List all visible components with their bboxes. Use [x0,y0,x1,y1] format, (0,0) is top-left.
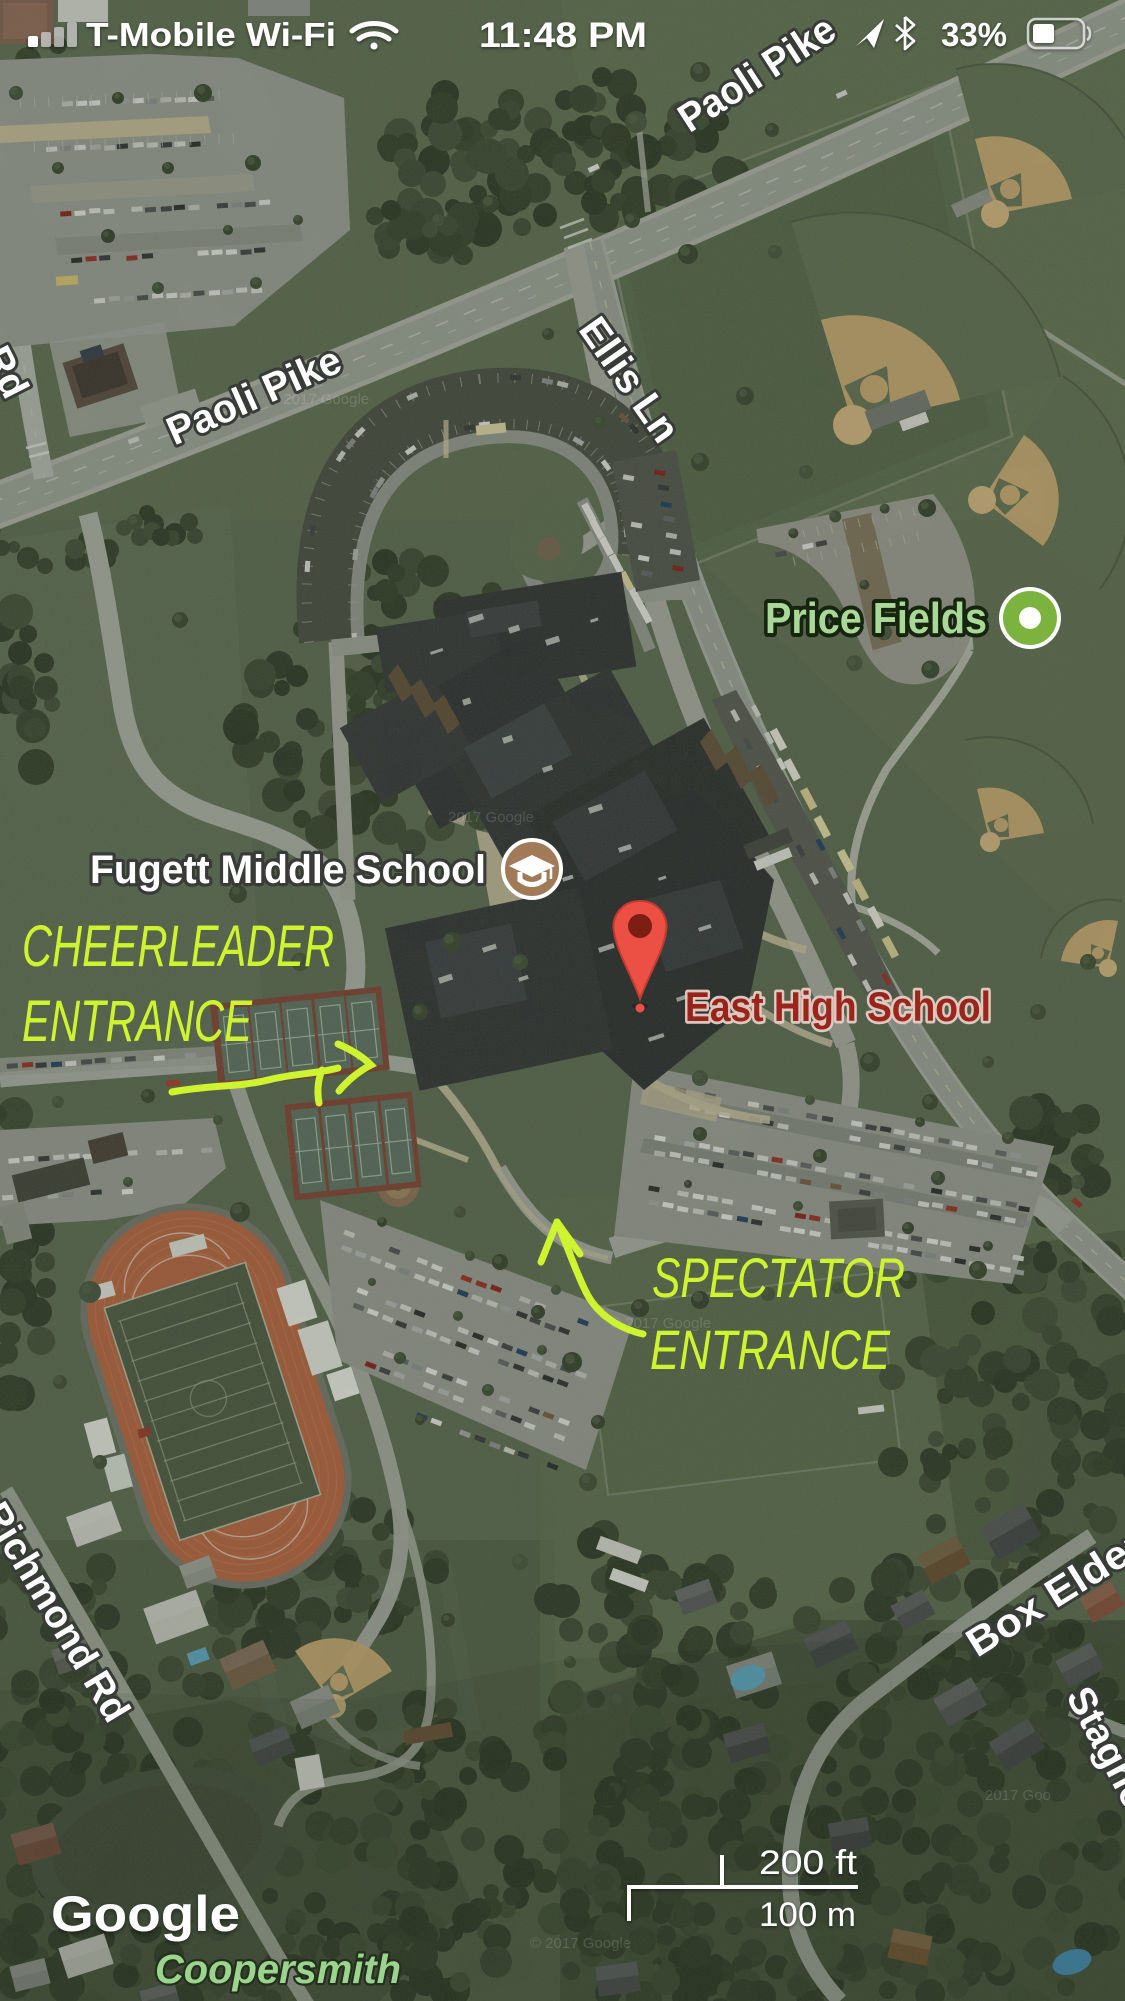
svg-text:100 m: 100 m [759,1896,856,1934]
svg-text:2017 Goo: 2017 Goo [985,1787,1051,1804]
svg-text:Coopersmith: Coopersmith [155,1946,401,1992]
svg-text:33%: 33% [941,16,1007,53]
svg-text:2017 Google: 2017 Google [448,809,534,826]
svg-text:East High School: East High School [685,983,991,1030]
svg-text:Google: Google [51,1886,240,1942]
svg-text:ENTRANCE: ENTRANCE [650,1318,891,1381]
svg-text:Fugett Middle School: Fugett Middle School [90,848,486,892]
svg-text:Price Fields: Price Fields [765,594,987,643]
svg-text:© 2017 Google: © 2017 Google [530,1935,631,1952]
svg-text:11:48 PM: 11:48 PM [479,16,647,55]
svg-text:ENTRANCE: ENTRANCE [22,989,253,1054]
svg-text:CHEERLEADER: CHEERLEADER [22,914,334,979]
svg-text:SPECTATOR: SPECTATOR [652,1246,905,1309]
svg-text:200 ft: 200 ft [759,1844,858,1882]
svg-text:T-Mobile Wi-Fi: T-Mobile Wi-Fi [86,16,336,53]
